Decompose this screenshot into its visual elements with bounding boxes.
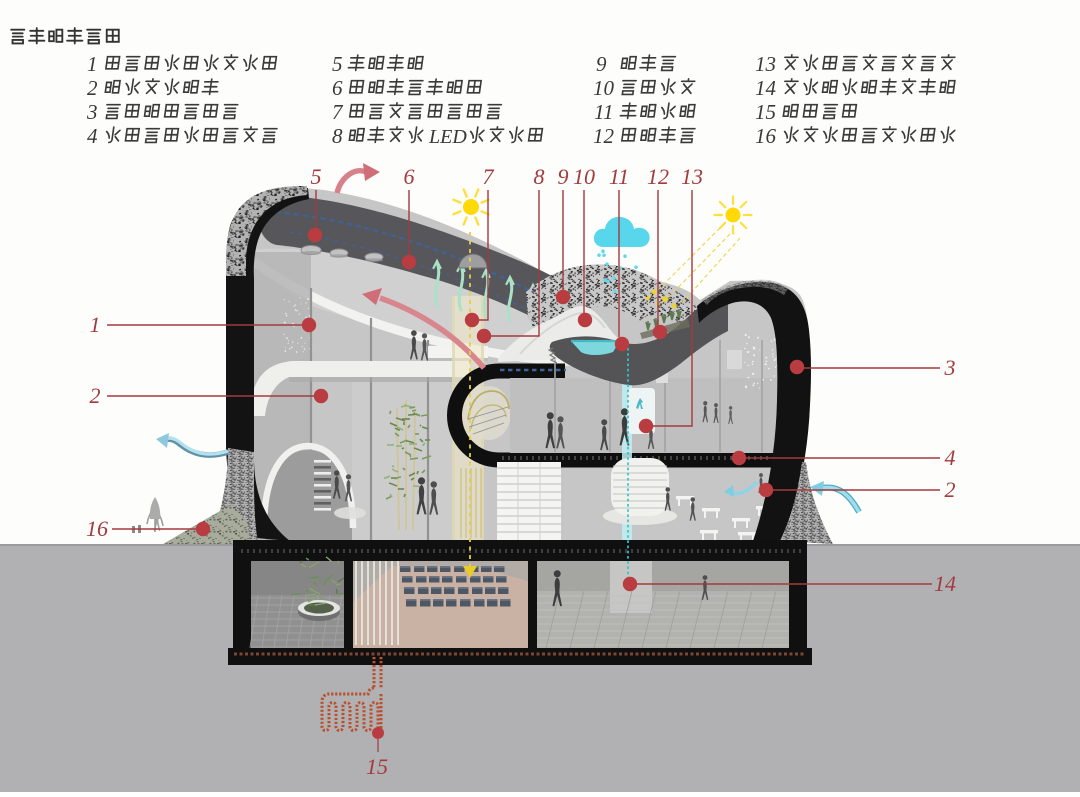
svg-text:8: 8 (534, 164, 545, 189)
svg-text:9: 9 (558, 164, 569, 189)
svg-text:2: 2 (945, 477, 956, 502)
svg-text:12: 12 (647, 164, 669, 189)
svg-text:2: 2 (87, 76, 98, 100)
svg-text:11: 11 (594, 100, 613, 124)
svg-text:15: 15 (366, 754, 388, 779)
svg-text:16: 16 (755, 124, 777, 148)
svg-text:13: 13 (681, 164, 703, 189)
svg-text:10: 10 (573, 164, 595, 189)
svg-text:1: 1 (87, 52, 98, 76)
svg-text:7: 7 (483, 164, 495, 189)
svg-text:11: 11 (609, 164, 629, 189)
svg-text:6: 6 (404, 164, 415, 189)
svg-text:10: 10 (593, 76, 615, 100)
svg-text:2: 2 (90, 383, 101, 408)
svg-text:1: 1 (90, 312, 101, 337)
svg-text:4: 4 (945, 445, 956, 470)
svg-text:5: 5 (311, 164, 322, 189)
svg-text:8: 8 (332, 124, 343, 148)
svg-text:12: 12 (593, 124, 615, 148)
svg-text:16: 16 (86, 516, 108, 541)
svg-text:15: 15 (755, 100, 776, 124)
svg-text:14: 14 (755, 76, 777, 100)
svg-text:13: 13 (755, 52, 776, 76)
svg-text:5: 5 (332, 52, 343, 76)
svg-text:4: 4 (87, 124, 98, 148)
svg-text:9: 9 (596, 52, 607, 76)
svg-text:3: 3 (86, 100, 98, 124)
svg-text:3: 3 (944, 355, 956, 380)
svg-text:6: 6 (332, 76, 343, 100)
svg-text:LED: LED (428, 126, 467, 148)
svg-text:14: 14 (934, 571, 956, 596)
svg-text:7: 7 (332, 100, 344, 124)
